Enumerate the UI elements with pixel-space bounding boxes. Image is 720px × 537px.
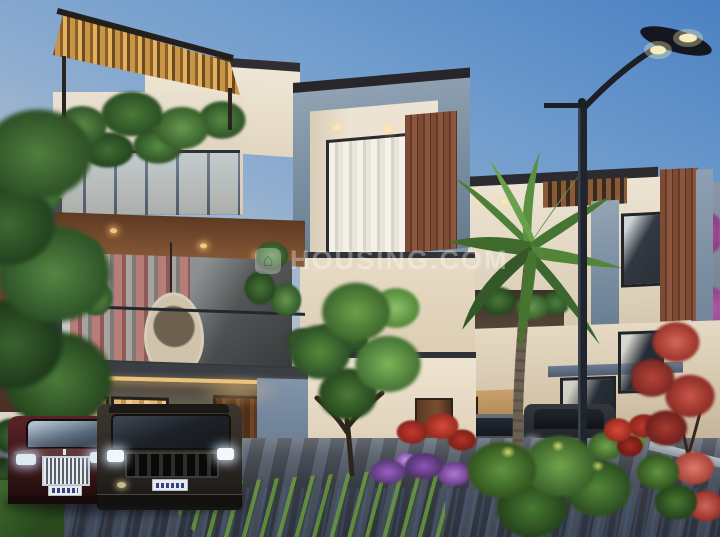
suv-license-plate xyxy=(152,479,188,491)
suv-windshield xyxy=(111,414,231,450)
pergola-post xyxy=(228,88,232,130)
sedan-license-plate xyxy=(48,485,82,496)
second-villa-wood-column xyxy=(660,168,698,322)
sedan-windshield xyxy=(26,419,106,449)
watermark-text: HOUSING.COM xyxy=(290,245,509,276)
plate-characters xyxy=(52,488,78,493)
red-leaf-tree xyxy=(632,312,720,462)
second-villa-stone-panel xyxy=(591,200,619,326)
sedan-chrome-grille xyxy=(42,456,90,486)
suv-headlight-right xyxy=(217,448,234,460)
suv-roof xyxy=(109,404,229,413)
housing-watermark: ⌂ HOUSING.COM xyxy=(255,245,509,276)
top-floor-stone-frame xyxy=(293,68,470,263)
sedan-hood-ornament xyxy=(63,449,66,455)
egg-chair-rod xyxy=(170,242,172,296)
top-floor-window xyxy=(326,133,408,262)
suv-grille xyxy=(125,452,219,478)
suv-front-car xyxy=(97,404,242,510)
sedan-headlight-left xyxy=(16,454,36,465)
ceiling-light-dot xyxy=(200,243,207,248)
suv-headlight-left xyxy=(107,450,124,462)
render-canvas: ⌂ HOUSING.COM xyxy=(0,0,720,537)
hedge-under-balcony xyxy=(0,336,335,402)
suv-fog-light xyxy=(117,482,126,488)
house-glyph: ⌂ xyxy=(263,250,274,271)
bottom-right-flower-bush xyxy=(632,444,720,537)
housing-logo-house-icon: ⌂ xyxy=(255,248,281,274)
plate-characters xyxy=(156,483,184,488)
second-villa-window-upper xyxy=(621,211,663,287)
suv-bumper xyxy=(97,494,242,507)
top-floor-wood-panel xyxy=(405,111,457,254)
